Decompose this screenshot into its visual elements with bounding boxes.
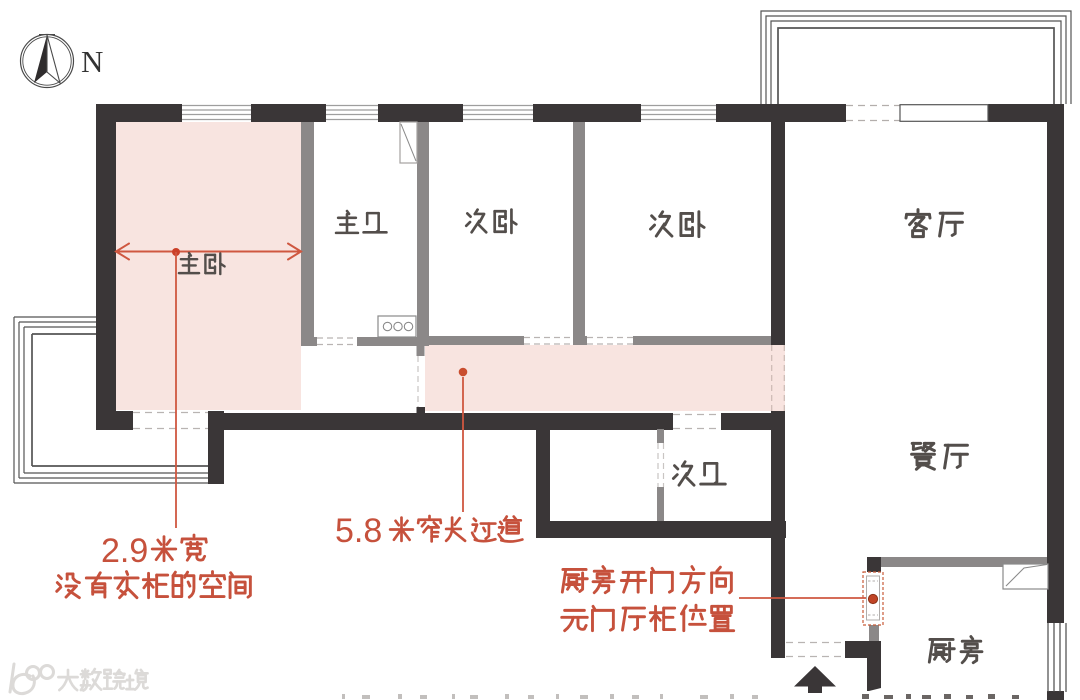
svg-text:2.9: 2.9	[101, 532, 148, 570]
svg-text:5.8: 5.8	[335, 512, 382, 550]
svg-text:N: N	[81, 44, 103, 79]
